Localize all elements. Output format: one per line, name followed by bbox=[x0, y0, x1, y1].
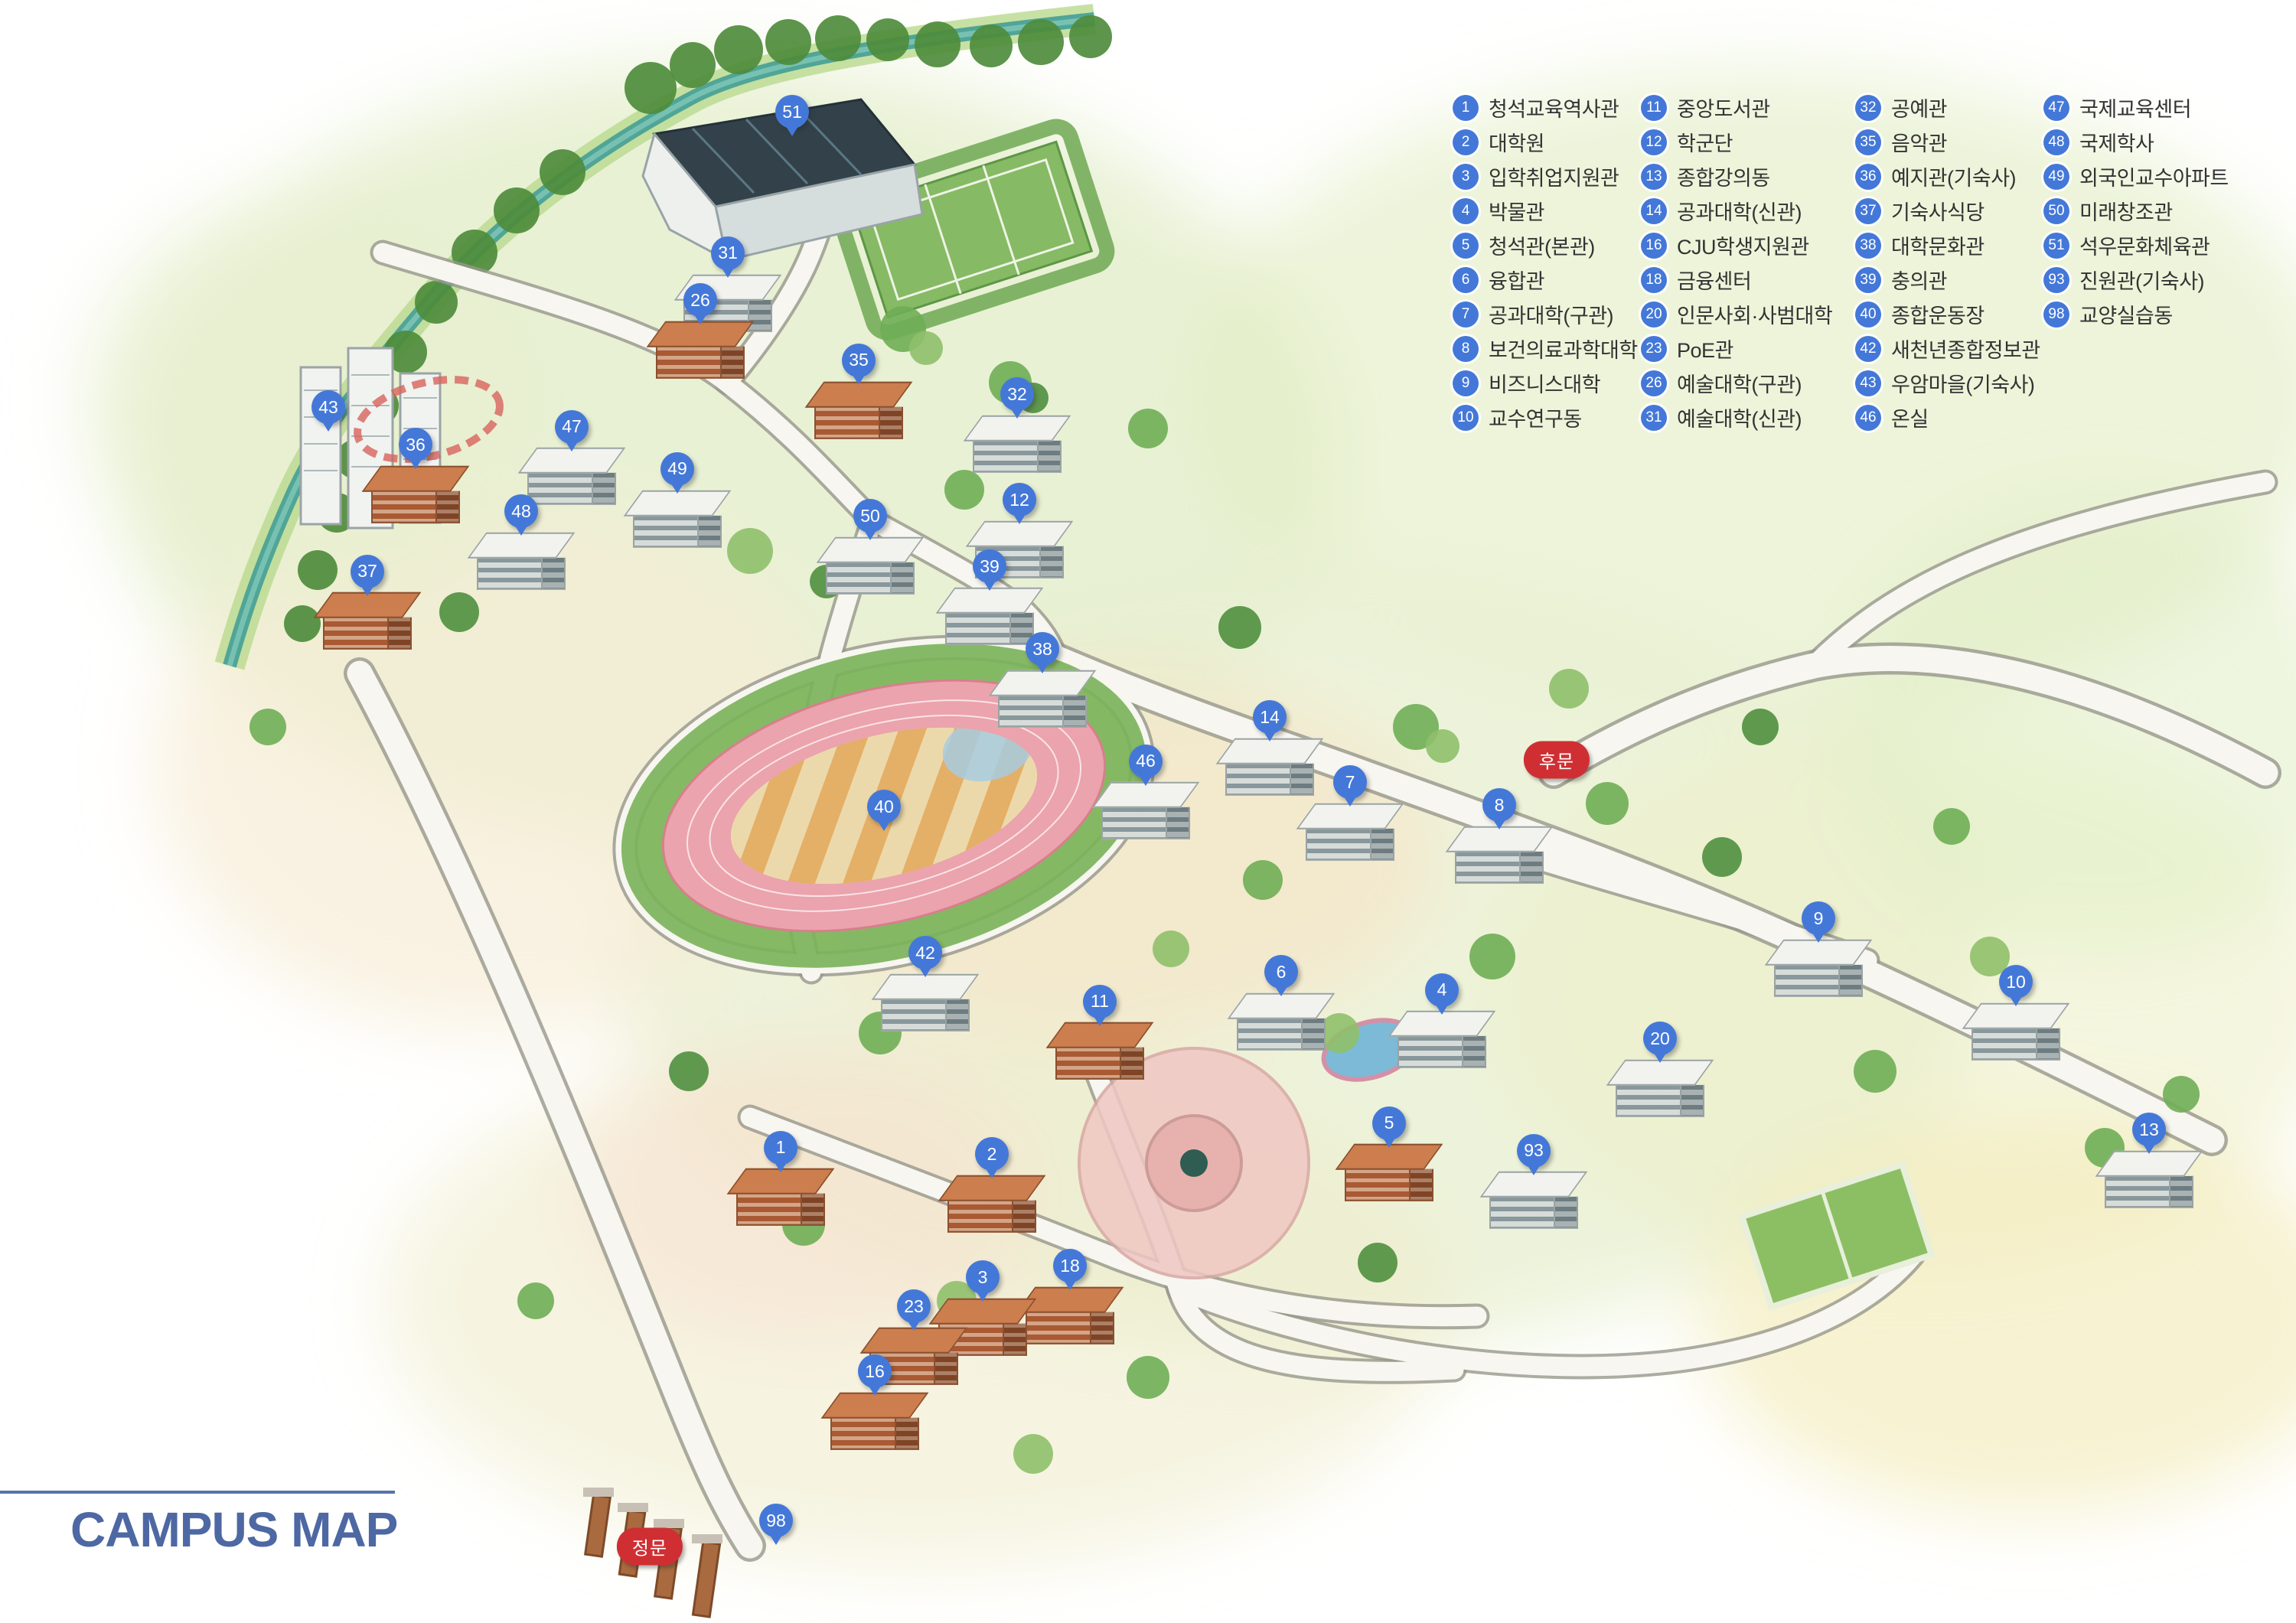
legend-item-8: 8보건의료과학대학 bbox=[1453, 331, 1641, 366]
legend-item-label: 예술대학(구관) bbox=[1677, 368, 1802, 398]
legend-item-40: 40종합운동장 bbox=[1855, 297, 2043, 331]
legend-number-badge: 98 bbox=[2043, 301, 2069, 328]
building-illustration-10 bbox=[1971, 1003, 2060, 1060]
legend-number-badge: 1 bbox=[1453, 95, 1479, 121]
legend-item-93: 93진원관(기숙사) bbox=[2043, 262, 2250, 297]
building-illustration-32 bbox=[973, 416, 1062, 472]
legend-item-20: 20인문사회·사범대학 bbox=[1641, 297, 1855, 331]
building-illustration-42 bbox=[881, 973, 970, 1030]
legend-item-label: 예지관(기숙사) bbox=[1891, 161, 2016, 191]
legend-item-label: 음악관 bbox=[1891, 127, 1947, 157]
legend-item-5: 5청석관(본관) bbox=[1453, 228, 1641, 262]
legend-column-2: 11중앙도서관12학군단13종합강의동14공과대학(신관)16CJU학생지원관1… bbox=[1641, 90, 1855, 435]
building-illustration-18 bbox=[1026, 1287, 1114, 1344]
legend-number-badge: 46 bbox=[1855, 405, 1881, 431]
legend-item-3: 3입학취업지원관 bbox=[1453, 159, 1641, 194]
building-illustration-46 bbox=[1101, 782, 1190, 839]
legend-number-badge: 10 bbox=[1453, 405, 1479, 431]
legend-item-36: 36예지관(기숙사) bbox=[1855, 159, 2043, 194]
building-illustration-35 bbox=[814, 381, 903, 438]
legend-number-badge: 23 bbox=[1641, 336, 1667, 362]
legend-item-4: 4박물관 bbox=[1453, 194, 1641, 228]
legend-item-label: 예술대학(신관) bbox=[1677, 402, 1802, 432]
legend-item-49: 49외국인교수아파트 bbox=[2043, 159, 2250, 194]
legend-item-label: 기숙사식당 bbox=[1891, 196, 1985, 226]
map-marker-8[interactable]: 8 bbox=[1482, 788, 1516, 822]
map-marker-40[interactable]: 40 bbox=[867, 790, 901, 823]
legend-number-badge: 4 bbox=[1453, 198, 1479, 224]
legend-item-16: 16CJU학생지원관 bbox=[1641, 228, 1855, 262]
title-block: CAMPUS MAP bbox=[0, 1491, 397, 1558]
legend-item-47: 47국제교육센터 bbox=[2043, 90, 2250, 125]
map-marker-42[interactable]: 42 bbox=[908, 936, 942, 970]
legend-number-badge: 31 bbox=[1641, 405, 1667, 431]
legend-number-badge: 38 bbox=[1855, 233, 1881, 259]
legend-item-label: 입학취업지원관 bbox=[1489, 161, 1619, 191]
legend-number-badge: 6 bbox=[1453, 267, 1479, 293]
legend-item-26: 26예술대학(구관) bbox=[1641, 366, 1855, 400]
legend-number-badge: 51 bbox=[2043, 233, 2069, 259]
legend-item-2: 2대학원 bbox=[1453, 125, 1641, 159]
legend-item-98: 98교양실습동 bbox=[2043, 297, 2250, 331]
legend-item-label: 청석교육역사관 bbox=[1489, 93, 1619, 122]
legend-number-badge: 12 bbox=[1641, 129, 1667, 155]
legend-item-11: 11중앙도서관 bbox=[1641, 90, 1855, 125]
legend-column-3: 32공예관35음악관36예지관(기숙사)37기숙사식당38대학문화관39충의관4… bbox=[1855, 90, 2043, 435]
legend-number-badge: 3 bbox=[1453, 164, 1479, 190]
map-marker-13[interactable]: 13 bbox=[2132, 1113, 2166, 1146]
legend-item-39: 39충의관 bbox=[1855, 262, 2043, 297]
legend-item-label: 교양실습동 bbox=[2079, 299, 2173, 329]
legend-item-label: 미래창조관 bbox=[2079, 196, 2173, 226]
legend-item-label: 공과대학(구관) bbox=[1489, 299, 1613, 329]
building-illustration-20 bbox=[1616, 1060, 1704, 1116]
legend-item-label: 중앙도서관 bbox=[1677, 93, 1770, 122]
building-illustration-9 bbox=[1774, 940, 1863, 996]
map-marker-48[interactable]: 48 bbox=[504, 494, 538, 528]
legend-number-badge: 50 bbox=[2043, 198, 2069, 224]
building-illustration-37 bbox=[323, 592, 412, 649]
building-illustration-14 bbox=[1225, 738, 1314, 795]
map-marker-36[interactable]: 36 bbox=[399, 428, 432, 461]
legend-item-label: 보건의료과학대학 bbox=[1489, 334, 1638, 363]
legend-item-label: 인문사회·사범대학 bbox=[1677, 299, 1832, 329]
legend-number-badge: 93 bbox=[2043, 267, 2069, 293]
building-illustration-8 bbox=[1455, 826, 1544, 882]
map-marker-3[interactable]: 3 bbox=[966, 1260, 1000, 1294]
legend-item-label: 진원관(기숙사) bbox=[2079, 265, 2204, 295]
legend-item-label: 국제학사 bbox=[2079, 127, 2154, 157]
legend-number-badge: 14 bbox=[1641, 198, 1667, 224]
legend-item-label: 청석관(본관) bbox=[1489, 230, 1595, 260]
legend-number-badge: 47 bbox=[2043, 95, 2069, 121]
legend-item-51: 51석우문화체육관 bbox=[2043, 228, 2250, 262]
main-gate-badge: 정문 bbox=[617, 1528, 683, 1566]
plaza-illustration bbox=[1079, 1048, 1309, 1278]
legend-item-label: 국제교육센터 bbox=[2079, 93, 2191, 122]
map-marker-37[interactable]: 37 bbox=[351, 555, 384, 588]
map-canvas: 1청석교육역사관2대학원3입학취업지원관4박물관5청석관(본관)6융합관7공과대… bbox=[0, 0, 2296, 1623]
legend-number-badge: 40 bbox=[1855, 301, 1881, 328]
map-marker-35[interactable]: 35 bbox=[842, 344, 876, 377]
legend-item-label: 공예관 bbox=[1891, 93, 1947, 122]
map-marker-10[interactable]: 10 bbox=[1999, 965, 2033, 999]
legend-column-1: 1청석교육역사관2대학원3입학취업지원관4박물관5청석관(본관)6융합관7공과대… bbox=[1453, 90, 1641, 435]
legend-item-18: 18금융센터 bbox=[1641, 262, 1855, 297]
legend-item-label: 학군단 bbox=[1677, 127, 1733, 157]
building-illustration-16 bbox=[830, 1393, 919, 1449]
legend-item-label: 외국인교수아파트 bbox=[2079, 161, 2229, 191]
legend-number-badge: 43 bbox=[1855, 370, 1881, 396]
building-illustration-13 bbox=[2105, 1151, 2193, 1207]
building-illustration-5 bbox=[1345, 1144, 1433, 1201]
legend-item-43: 43우암마을(기숙사) bbox=[1855, 366, 2043, 400]
map-marker-2[interactable]: 2 bbox=[975, 1137, 1009, 1171]
legend-item-37: 37기숙사식당 bbox=[1855, 194, 2043, 228]
legend-item-1: 1청석교육역사관 bbox=[1453, 90, 1641, 125]
legend-item-label: 대학문화관 bbox=[1891, 230, 1985, 260]
building-illustration-39 bbox=[945, 588, 1034, 644]
legend-item-50: 50미래창조관 bbox=[2043, 194, 2250, 228]
map-marker-49[interactable]: 49 bbox=[660, 452, 694, 486]
legend-item-7: 7공과대학(구관) bbox=[1453, 297, 1641, 331]
legend-item-31: 31예술대학(신관) bbox=[1641, 400, 1855, 435]
legend-item-label: 종합운동장 bbox=[1891, 299, 1985, 329]
legend-item-label: 공과대학(신관) bbox=[1677, 196, 1802, 226]
map-marker-16[interactable]: 16 bbox=[858, 1354, 892, 1388]
legend-item-32: 32공예관 bbox=[1855, 90, 2043, 125]
legend-item-14: 14공과대학(신관) bbox=[1641, 194, 1855, 228]
building-illustration-7 bbox=[1306, 803, 1394, 860]
building-illustration-47 bbox=[527, 448, 616, 504]
building-illustration-6 bbox=[1237, 993, 1326, 1050]
legend-item-label: 박물관 bbox=[1489, 196, 1544, 226]
legend-number-badge: 35 bbox=[1855, 129, 1881, 155]
legend-number-badge: 32 bbox=[1855, 95, 1881, 121]
legend-item-label: 대학원 bbox=[1489, 127, 1544, 157]
legend-item-label: 새천년종합정보관 bbox=[1891, 334, 2040, 363]
building-illustration-36 bbox=[371, 466, 460, 523]
map-marker-46[interactable]: 46 bbox=[1129, 745, 1163, 778]
map-marker-31[interactable]: 31 bbox=[711, 236, 745, 270]
map-marker-4[interactable]: 4 bbox=[1425, 973, 1459, 1007]
legend-number-badge: 16 bbox=[1641, 233, 1667, 259]
building-illustration-4 bbox=[1397, 1011, 1486, 1067]
legend-number-badge: 39 bbox=[1855, 267, 1881, 293]
legend-number-badge: 36 bbox=[1855, 164, 1881, 190]
legend-number-badge: 48 bbox=[2043, 129, 2069, 155]
building-illustration-26 bbox=[656, 321, 745, 378]
title-underline bbox=[0, 1491, 395, 1494]
legend-number-badge: 5 bbox=[1453, 233, 1479, 259]
legend-item-label: 금융센터 bbox=[1677, 265, 1751, 295]
legend-item-35: 35음악관 bbox=[1855, 125, 2043, 159]
building-illustration-50 bbox=[826, 537, 915, 594]
legend-number-badge: 2 bbox=[1453, 129, 1479, 155]
map-marker-7[interactable]: 7 bbox=[1333, 765, 1367, 799]
legend-number-badge: 20 bbox=[1641, 301, 1667, 328]
legend: 1청석교육역사관2대학원3입학취업지원관4박물관5청석관(본관)6융합관7공과대… bbox=[1453, 90, 2250, 435]
legend-item-13: 13종합강의동 bbox=[1641, 159, 1855, 194]
map-marker-39[interactable]: 39 bbox=[973, 549, 1006, 583]
legend-item-label: CJU학생지원관 bbox=[1677, 230, 1809, 260]
legend-item-label: 우암마을(기숙사) bbox=[1891, 368, 2034, 398]
map-marker-47[interactable]: 47 bbox=[555, 410, 589, 444]
legend-item-label: 비즈니스대학 bbox=[1489, 368, 1600, 398]
legend-item-42: 42새천년종합정보관 bbox=[1855, 331, 2043, 366]
legend-number-badge: 26 bbox=[1641, 370, 1667, 396]
legend-item-label: 충의관 bbox=[1891, 265, 1947, 295]
legend-item-6: 6융합관 bbox=[1453, 262, 1641, 297]
building-illustration-1 bbox=[736, 1168, 825, 1225]
building-illustration-93 bbox=[1489, 1172, 1578, 1228]
legend-item-label: 석우문화체육관 bbox=[2079, 230, 2210, 260]
building-illustration-38 bbox=[998, 670, 1087, 727]
legend-item-label: 교수연구동 bbox=[1489, 402, 1582, 432]
legend-item-9: 9비즈니스대학 bbox=[1453, 366, 1641, 400]
legend-number-badge: 13 bbox=[1641, 164, 1667, 190]
legend-number-badge: 11 bbox=[1641, 95, 1667, 121]
legend-item-12: 12학군단 bbox=[1641, 125, 1855, 159]
legend-column-4: 47국제교육센터48국제학사49외국인교수아파트50미래창조관51석우문화체육관… bbox=[2043, 90, 2250, 435]
map-marker-12[interactable]: 12 bbox=[1003, 483, 1036, 517]
legend-number-badge: 8 bbox=[1453, 336, 1479, 362]
building-illustration-48 bbox=[477, 533, 566, 589]
legend-item-38: 38대학문화관 bbox=[1855, 228, 2043, 262]
map-marker-93[interactable]: 93 bbox=[1517, 1134, 1551, 1168]
legend-number-badge: 7 bbox=[1453, 301, 1479, 328]
legend-number-badge: 9 bbox=[1453, 370, 1479, 396]
legend-item-label: 종합강의동 bbox=[1677, 161, 1770, 191]
legend-item-48: 48국제학사 bbox=[2043, 125, 2250, 159]
legend-number-badge: 18 bbox=[1641, 267, 1667, 293]
legend-item-23: 23PoE관 bbox=[1641, 331, 1855, 366]
building-illustration-49 bbox=[633, 490, 722, 546]
page-title: CAMPUS MAP bbox=[70, 1501, 397, 1558]
legend-item-10: 10교수연구동 bbox=[1453, 400, 1641, 435]
building-illustration-2 bbox=[947, 1175, 1036, 1231]
building-illustration-11 bbox=[1055, 1022, 1144, 1079]
legend-number-badge: 49 bbox=[2043, 164, 2069, 190]
map-marker-1[interactable]: 1 bbox=[764, 1131, 797, 1165]
map-marker-5[interactable]: 5 bbox=[1372, 1106, 1406, 1140]
legend-item-label: PoE관 bbox=[1677, 334, 1733, 363]
back-gate-badge: 후문 bbox=[1524, 741, 1590, 778]
map-marker-11[interactable]: 11 bbox=[1083, 985, 1117, 1018]
legend-number-badge: 37 bbox=[1855, 198, 1881, 224]
legend-number-badge: 42 bbox=[1855, 336, 1881, 362]
legend-item-label: 온실 bbox=[1891, 402, 1929, 432]
legend-item-label: 융합관 bbox=[1489, 265, 1544, 295]
legend-item-46: 46온실 bbox=[1855, 400, 2043, 435]
